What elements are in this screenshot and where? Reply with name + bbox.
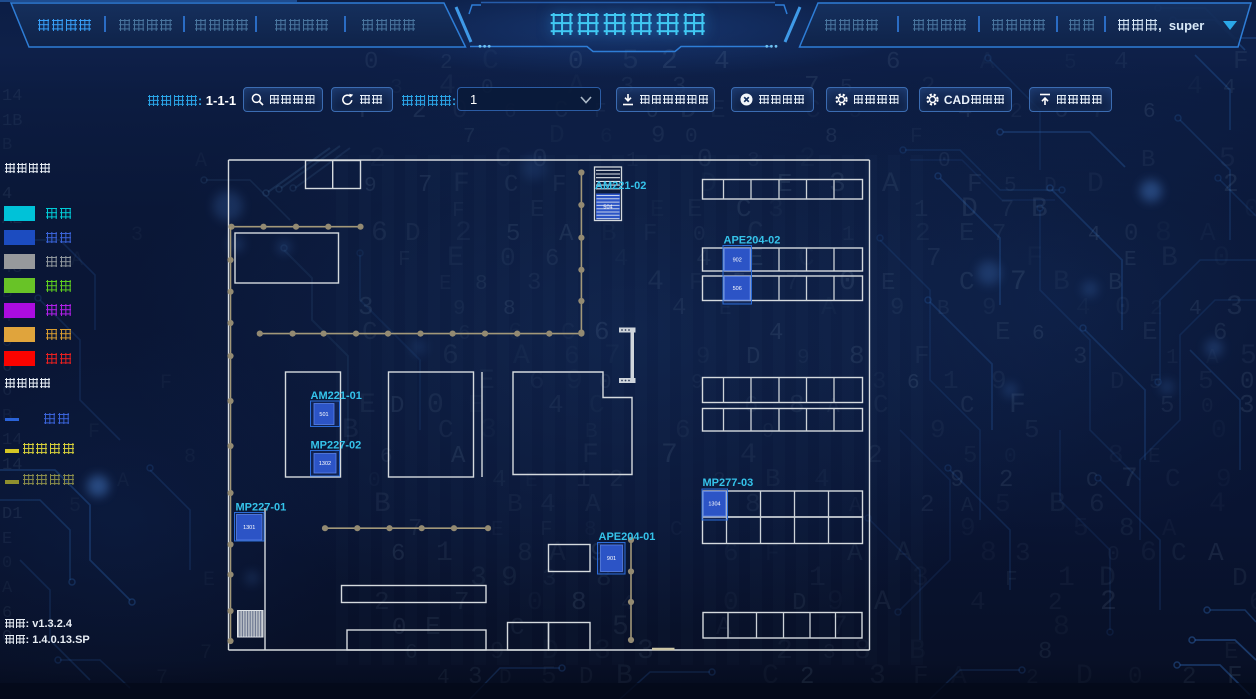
svg-text:501: 501: [319, 412, 328, 418]
svg-text:MP227-01: MP227-01: [236, 502, 287, 514]
svg-text:901: 901: [607, 556, 616, 562]
svg-text:AM221-02: AM221-02: [595, 180, 646, 192]
svg-text:MP277-03: MP277-03: [703, 477, 754, 489]
svg-text:APE204-01: APE204-01: [599, 531, 656, 543]
svg-text:504: 504: [603, 204, 612, 210]
svg-text:APE204-02: APE204-02: [724, 235, 781, 247]
svg-text:506: 506: [733, 286, 742, 292]
svg-text:AM221-01: AM221-01: [311, 390, 362, 402]
svg-text:902: 902: [733, 258, 742, 264]
svg-text:1301: 1301: [243, 525, 255, 531]
svg-text:MP227-02: MP227-02: [311, 440, 362, 452]
svg-text:1302: 1302: [319, 461, 331, 467]
svg-text:1304: 1304: [708, 502, 720, 508]
